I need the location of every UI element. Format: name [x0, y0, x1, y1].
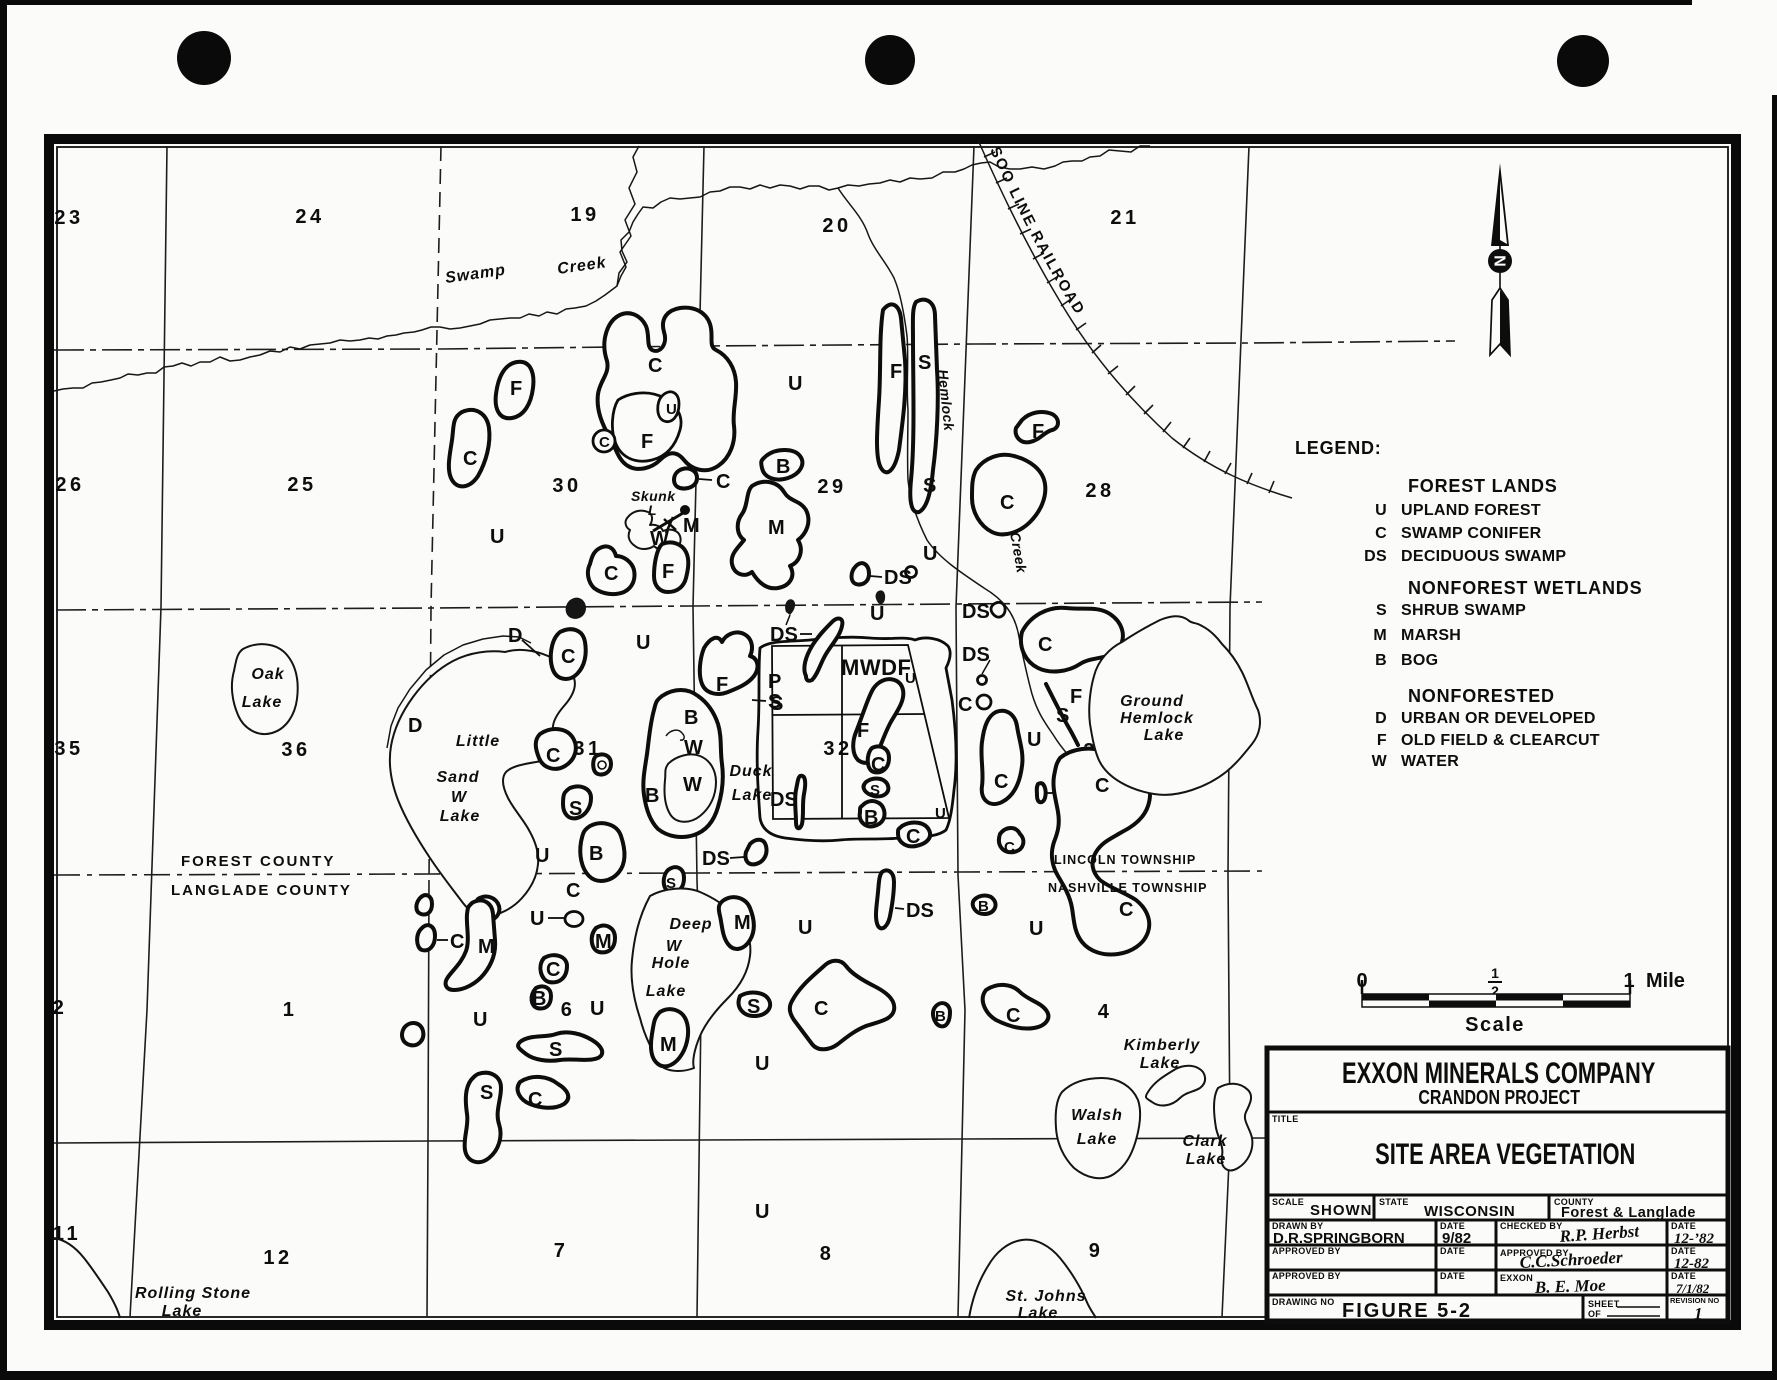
svg-text:F: F [1032, 421, 1044, 443]
svg-text:D: D [408, 715, 422, 737]
svg-text:Lake: Lake [242, 694, 282, 711]
svg-text:U: U [473, 1009, 487, 1031]
svg-text:S: S [569, 798, 582, 820]
svg-text:7: 7 [554, 1240, 569, 1262]
svg-text:Scale: Scale [1465, 1014, 1525, 1036]
svg-text:B: B [864, 807, 878, 829]
svg-text:Lake: Lake [162, 1303, 202, 1320]
svg-text:U: U [590, 998, 604, 1020]
svg-text:Lake: Lake [440, 808, 480, 825]
svg-text:Little: Little [456, 733, 500, 750]
svg-text:W: W [1372, 753, 1388, 770]
svg-text:C: C [450, 931, 464, 953]
svg-text:S: S [770, 693, 783, 715]
svg-text:U: U [798, 917, 812, 939]
svg-text:S: S [1376, 602, 1387, 619]
svg-text:DECIDUOUS SWAMP: DECIDUOUS SWAMP [1401, 548, 1566, 565]
svg-text:7/1/82: 7/1/82 [1676, 1281, 1710, 1296]
svg-text:F: F [662, 561, 674, 583]
svg-text:C: C [604, 563, 618, 585]
svg-text:23: 23 [54, 207, 83, 229]
svg-text:Hole: Hole [652, 955, 691, 972]
svg-text:C: C [528, 1089, 542, 1111]
svg-text:Lake: Lake [1018, 1305, 1058, 1322]
svg-text:W: W [684, 737, 703, 759]
svg-text:6: 6 [561, 999, 576, 1021]
svg-text:1: 1 [1694, 1304, 1703, 1323]
svg-text:U: U [755, 1201, 769, 1223]
svg-text:Duck: Duck [729, 763, 772, 780]
svg-text:DATE: DATE [1440, 1271, 1465, 1281]
svg-text:U: U [1027, 729, 1041, 751]
svg-text:OF: OF [1588, 1309, 1601, 1319]
svg-text:1: 1 [283, 999, 298, 1021]
svg-text:F: F [890, 361, 902, 383]
svg-text:NASHVILLE TOWNSHIP: NASHVILLE TOWNSHIP [1048, 881, 1207, 895]
svg-text:CRANDON PROJECT: CRANDON PROJECT [1418, 1085, 1580, 1108]
svg-text:DATE: DATE [1671, 1271, 1696, 1281]
svg-text:C: C [1004, 839, 1015, 856]
svg-text:DS: DS [962, 644, 990, 666]
svg-text:B: B [645, 785, 659, 807]
svg-text:M: M [1373, 627, 1387, 644]
svg-text:C: C [1038, 634, 1052, 656]
svg-text:DS: DS [770, 624, 798, 646]
svg-text:C: C [566, 880, 580, 902]
svg-text:SHEET: SHEET [1588, 1299, 1620, 1309]
svg-text:DS: DS [1364, 548, 1387, 565]
svg-text:S: S [870, 782, 880, 799]
svg-text:CHECKED BY: CHECKED BY [1500, 1221, 1563, 1231]
svg-text:B: B [532, 988, 546, 1010]
svg-text:35: 35 [54, 738, 83, 760]
svg-text:S: S [747, 996, 760, 1018]
svg-text:APPROVED BY: APPROVED BY [1272, 1246, 1341, 1256]
svg-text:Sand: Sand [436, 769, 479, 786]
svg-text:W: W [451, 789, 468, 806]
svg-text:12: 12 [263, 1247, 292, 1269]
svg-text:9/82: 9/82 [1442, 1230, 1471, 1247]
svg-text:S: S [549, 1039, 562, 1061]
svg-text:DATE: DATE [1671, 1246, 1696, 1256]
svg-text:W: W [666, 938, 683, 955]
svg-text:BOG: BOG [1401, 652, 1438, 669]
svg-text:DS: DS [962, 601, 990, 623]
svg-text:Walsh: Walsh [1071, 1107, 1123, 1124]
svg-text:C: C [1375, 525, 1387, 542]
svg-text:26: 26 [55, 474, 84, 496]
svg-text:B: B [935, 1008, 946, 1025]
svg-text:Oak: Oak [251, 666, 284, 683]
svg-text:C: C [994, 771, 1008, 793]
svg-text:U: U [1375, 502, 1387, 519]
svg-text:UPLAND FOREST: UPLAND FOREST [1401, 502, 1541, 519]
svg-text:LANGLADE COUNTY: LANGLADE COUNTY [171, 882, 352, 899]
svg-text:U: U [1029, 918, 1043, 940]
svg-text:FOREST LANDS: FOREST LANDS [1408, 476, 1558, 496]
svg-text:STATE: STATE [1379, 1197, 1409, 1207]
svg-text:32: 32 [823, 738, 852, 760]
svg-text:29: 29 [817, 476, 846, 498]
svg-text:U: U [530, 908, 544, 930]
svg-text:C: C [958, 694, 972, 716]
svg-text:Ground: Ground [1120, 693, 1184, 710]
svg-text:MWDF: MWDF [841, 655, 911, 680]
svg-text:S: S [918, 352, 931, 374]
svg-text:SHRUB SWAMP: SHRUB SWAMP [1401, 602, 1526, 619]
svg-text:9: 9 [1089, 1240, 1104, 1262]
svg-text:Lake: Lake [646, 983, 686, 1000]
svg-text:C: C [814, 998, 828, 1020]
svg-text:U: U [935, 805, 946, 822]
svg-text:C: C [871, 754, 885, 776]
svg-text:St. Johns: St. Johns [1005, 1288, 1086, 1305]
svg-text:30: 30 [552, 475, 581, 497]
svg-text:B: B [776, 456, 790, 478]
svg-text:U: U [535, 845, 549, 867]
svg-text:Clark: Clark [1182, 1133, 1227, 1150]
svg-text:FIGURE 5-2: FIGURE 5-2 [1342, 1300, 1472, 1322]
svg-text:C: C [906, 826, 920, 848]
svg-text:M: M [595, 931, 612, 953]
svg-text:SITE AREA VEGETATION: SITE AREA VEGETATION [1375, 1137, 1635, 1171]
svg-text:U: U [788, 373, 802, 395]
svg-text:Lake: Lake [732, 787, 772, 804]
svg-text:S: S [480, 1082, 493, 1104]
svg-text:F: F [641, 431, 653, 453]
svg-text:LINCOLN TOWNSHIP: LINCOLN TOWNSHIP [1054, 853, 1196, 867]
svg-text:Deep: Deep [669, 916, 712, 933]
svg-text:U: U [490, 526, 504, 548]
svg-text:S: S [1056, 705, 1069, 727]
svg-text:B: B [1375, 652, 1387, 669]
svg-text:B: B [978, 898, 989, 915]
svg-text:C: C [599, 434, 610, 451]
svg-text:28: 28 [1085, 480, 1114, 502]
svg-text:M: M [660, 1034, 677, 1056]
svg-text:F: F [716, 674, 728, 696]
svg-text:25: 25 [287, 474, 316, 496]
svg-text:21: 21 [1110, 207, 1139, 229]
svg-text:B: B [589, 843, 603, 865]
svg-text:20: 20 [822, 215, 851, 237]
svg-text:EXXON: EXXON [1500, 1273, 1533, 1283]
svg-text:DS: DS [702, 848, 730, 870]
svg-text:D.R.SPRINGBORN: D.R.SPRINGBORN [1273, 1230, 1405, 1247]
svg-text:C: C [546, 745, 560, 767]
svg-text:F: F [510, 378, 522, 400]
svg-text:WATER: WATER [1401, 753, 1459, 770]
svg-text:DS: DS [884, 567, 912, 589]
svg-text:Mile: Mile [1646, 970, 1685, 992]
svg-text:1: 1 [1491, 965, 1499, 981]
svg-text:APPROVED BY: APPROVED BY [1272, 1271, 1341, 1281]
svg-text:D: D [508, 625, 522, 647]
svg-text:D: D [1375, 710, 1387, 727]
svg-text:OLD FIELD & CLEARCUT: OLD FIELD & CLEARCUT [1401, 732, 1600, 749]
svg-text:8: 8 [820, 1243, 835, 1265]
svg-text:URBAN OR DEVELOPED: URBAN OR DEVELOPED [1401, 710, 1596, 727]
svg-text:2: 2 [53, 997, 68, 1019]
svg-text:DS: DS [770, 789, 798, 811]
svg-text:N: N [1493, 255, 1510, 267]
svg-text:SHOWN: SHOWN [1310, 1202, 1373, 1219]
svg-text:C: C [1095, 775, 1109, 797]
svg-text:4: 4 [1098, 1001, 1113, 1023]
svg-text:WISCONSIN: WISCONSIN [1424, 1203, 1515, 1220]
svg-text:SWAMP CONIFER: SWAMP CONIFER [1401, 525, 1542, 542]
svg-text:U: U [666, 401, 677, 418]
svg-text:C: C [716, 471, 730, 493]
svg-text:Lake: Lake [1140, 1055, 1180, 1072]
svg-text:W: W [683, 774, 702, 796]
svg-text:C: C [561, 646, 575, 668]
svg-text:NONFOREST WETLANDS: NONFOREST WETLANDS [1408, 578, 1642, 598]
svg-text:Kimberly: Kimberly [1124, 1037, 1201, 1054]
svg-text:Lake: Lake [1186, 1151, 1226, 1168]
svg-text:U: U [905, 670, 916, 687]
svg-text:19: 19 [570, 204, 599, 226]
svg-text:DRAWING NO: DRAWING NO [1272, 1297, 1335, 1307]
svg-text:F: F [857, 720, 869, 742]
svg-text:Forest & Langlade: Forest & Langlade [1561, 1205, 1696, 1221]
svg-text:Lake: Lake [1144, 727, 1184, 744]
svg-text:F: F [1377, 732, 1387, 749]
svg-text:U: U [636, 632, 650, 654]
svg-text:MARSH: MARSH [1401, 627, 1461, 644]
svg-text:C: C [1006, 1005, 1020, 1027]
svg-text:P: P [768, 671, 781, 693]
svg-text:FOREST COUNTY: FOREST COUNTY [181, 853, 335, 870]
svg-text:U: U [923, 543, 937, 565]
svg-text:12-’82: 12-’82 [1674, 1231, 1714, 1247]
svg-text:C: C [1119, 899, 1133, 921]
svg-text:S: S [923, 475, 936, 497]
svg-text:Rolling Stone: Rolling Stone [135, 1285, 251, 1302]
svg-text:NONFORESTED: NONFORESTED [1408, 686, 1555, 706]
svg-text:DS: DS [906, 900, 934, 922]
svg-text:36: 36 [281, 739, 310, 761]
svg-text:C: C [648, 355, 662, 377]
svg-text:B. E. Moe: B. E. Moe [1533, 1276, 1606, 1298]
svg-text:L: L [648, 502, 657, 518]
svg-text:LEGEND:: LEGEND: [1295, 438, 1382, 458]
svg-text:M: M [683, 515, 700, 537]
svg-text:DATE: DATE [1671, 1221, 1696, 1231]
svg-text:M: M [478, 936, 495, 958]
svg-text:Hemlock: Hemlock [1120, 710, 1194, 727]
svg-text:C: C [1000, 492, 1014, 514]
svg-text:U: U [755, 1053, 769, 1075]
svg-text:SCALE: SCALE [1272, 1197, 1304, 1207]
svg-text:TITLE: TITLE [1272, 1114, 1299, 1124]
svg-text:M: M [768, 517, 785, 539]
svg-text:24: 24 [295, 206, 324, 228]
svg-text:C: C [546, 959, 560, 981]
svg-text:B: B [684, 707, 698, 729]
svg-text:12-82: 12-82 [1674, 1256, 1709, 1272]
svg-text:DATE: DATE [1440, 1246, 1465, 1256]
svg-text:F: F [1070, 686, 1082, 708]
svg-text:Lake: Lake [1077, 1131, 1117, 1148]
svg-text:U: U [870, 603, 884, 625]
svg-text:M: M [734, 912, 751, 934]
svg-text:C: C [463, 448, 477, 470]
